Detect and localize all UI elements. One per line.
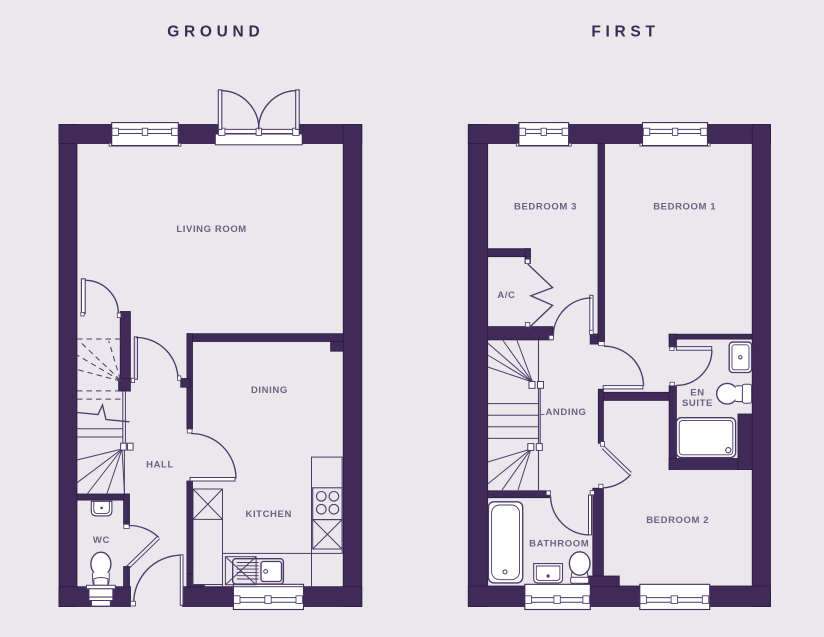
svg-text:HALL: HALL [146,460,174,471]
svg-text:WC: WC [93,535,110,546]
svg-text:BEDROOM 2: BEDROOM 2 [646,515,709,526]
svg-text:FIRST: FIRST [591,23,659,40]
svg-text:GROUND: GROUND [167,23,264,40]
svg-text:LIVING ROOM: LIVING ROOM [176,224,246,235]
svg-text:BATHROOM: BATHROOM [529,538,589,549]
svg-text:DINING: DINING [251,385,288,396]
svg-text:BEDROOM 1: BEDROOM 1 [653,202,716,213]
svg-text:BEDROOM 3: BEDROOM 3 [514,202,577,213]
svg-text:KITCHEN: KITCHEN [245,509,291,520]
svg-text:LANDING: LANDING [539,407,586,418]
svg-text:A/C: A/C [497,290,515,301]
svg-text:SUITE: SUITE [682,398,713,409]
